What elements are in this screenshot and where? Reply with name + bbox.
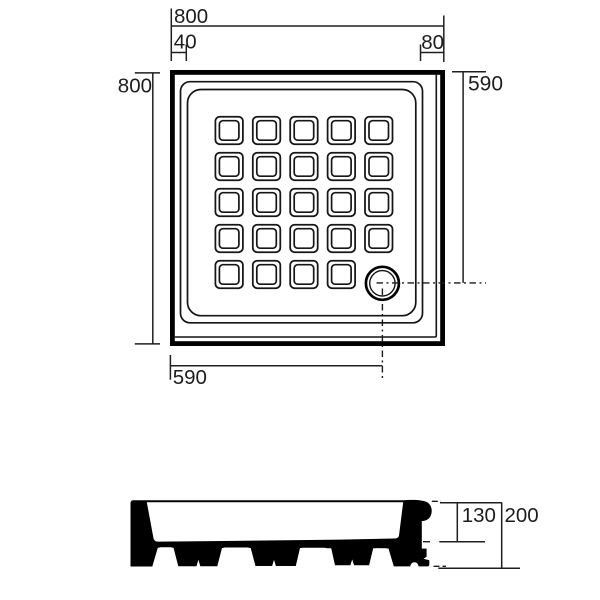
svg-text:590: 590 <box>468 73 503 96</box>
svg-text:80: 80 <box>421 31 444 54</box>
svg-text:40: 40 <box>174 31 197 54</box>
svg-text:130: 130 <box>462 504 496 527</box>
svg-text:590: 590 <box>173 366 207 389</box>
svg-text:800: 800 <box>174 5 208 28</box>
svg-text:800: 800 <box>118 75 152 98</box>
svg-text:200: 200 <box>505 504 539 527</box>
